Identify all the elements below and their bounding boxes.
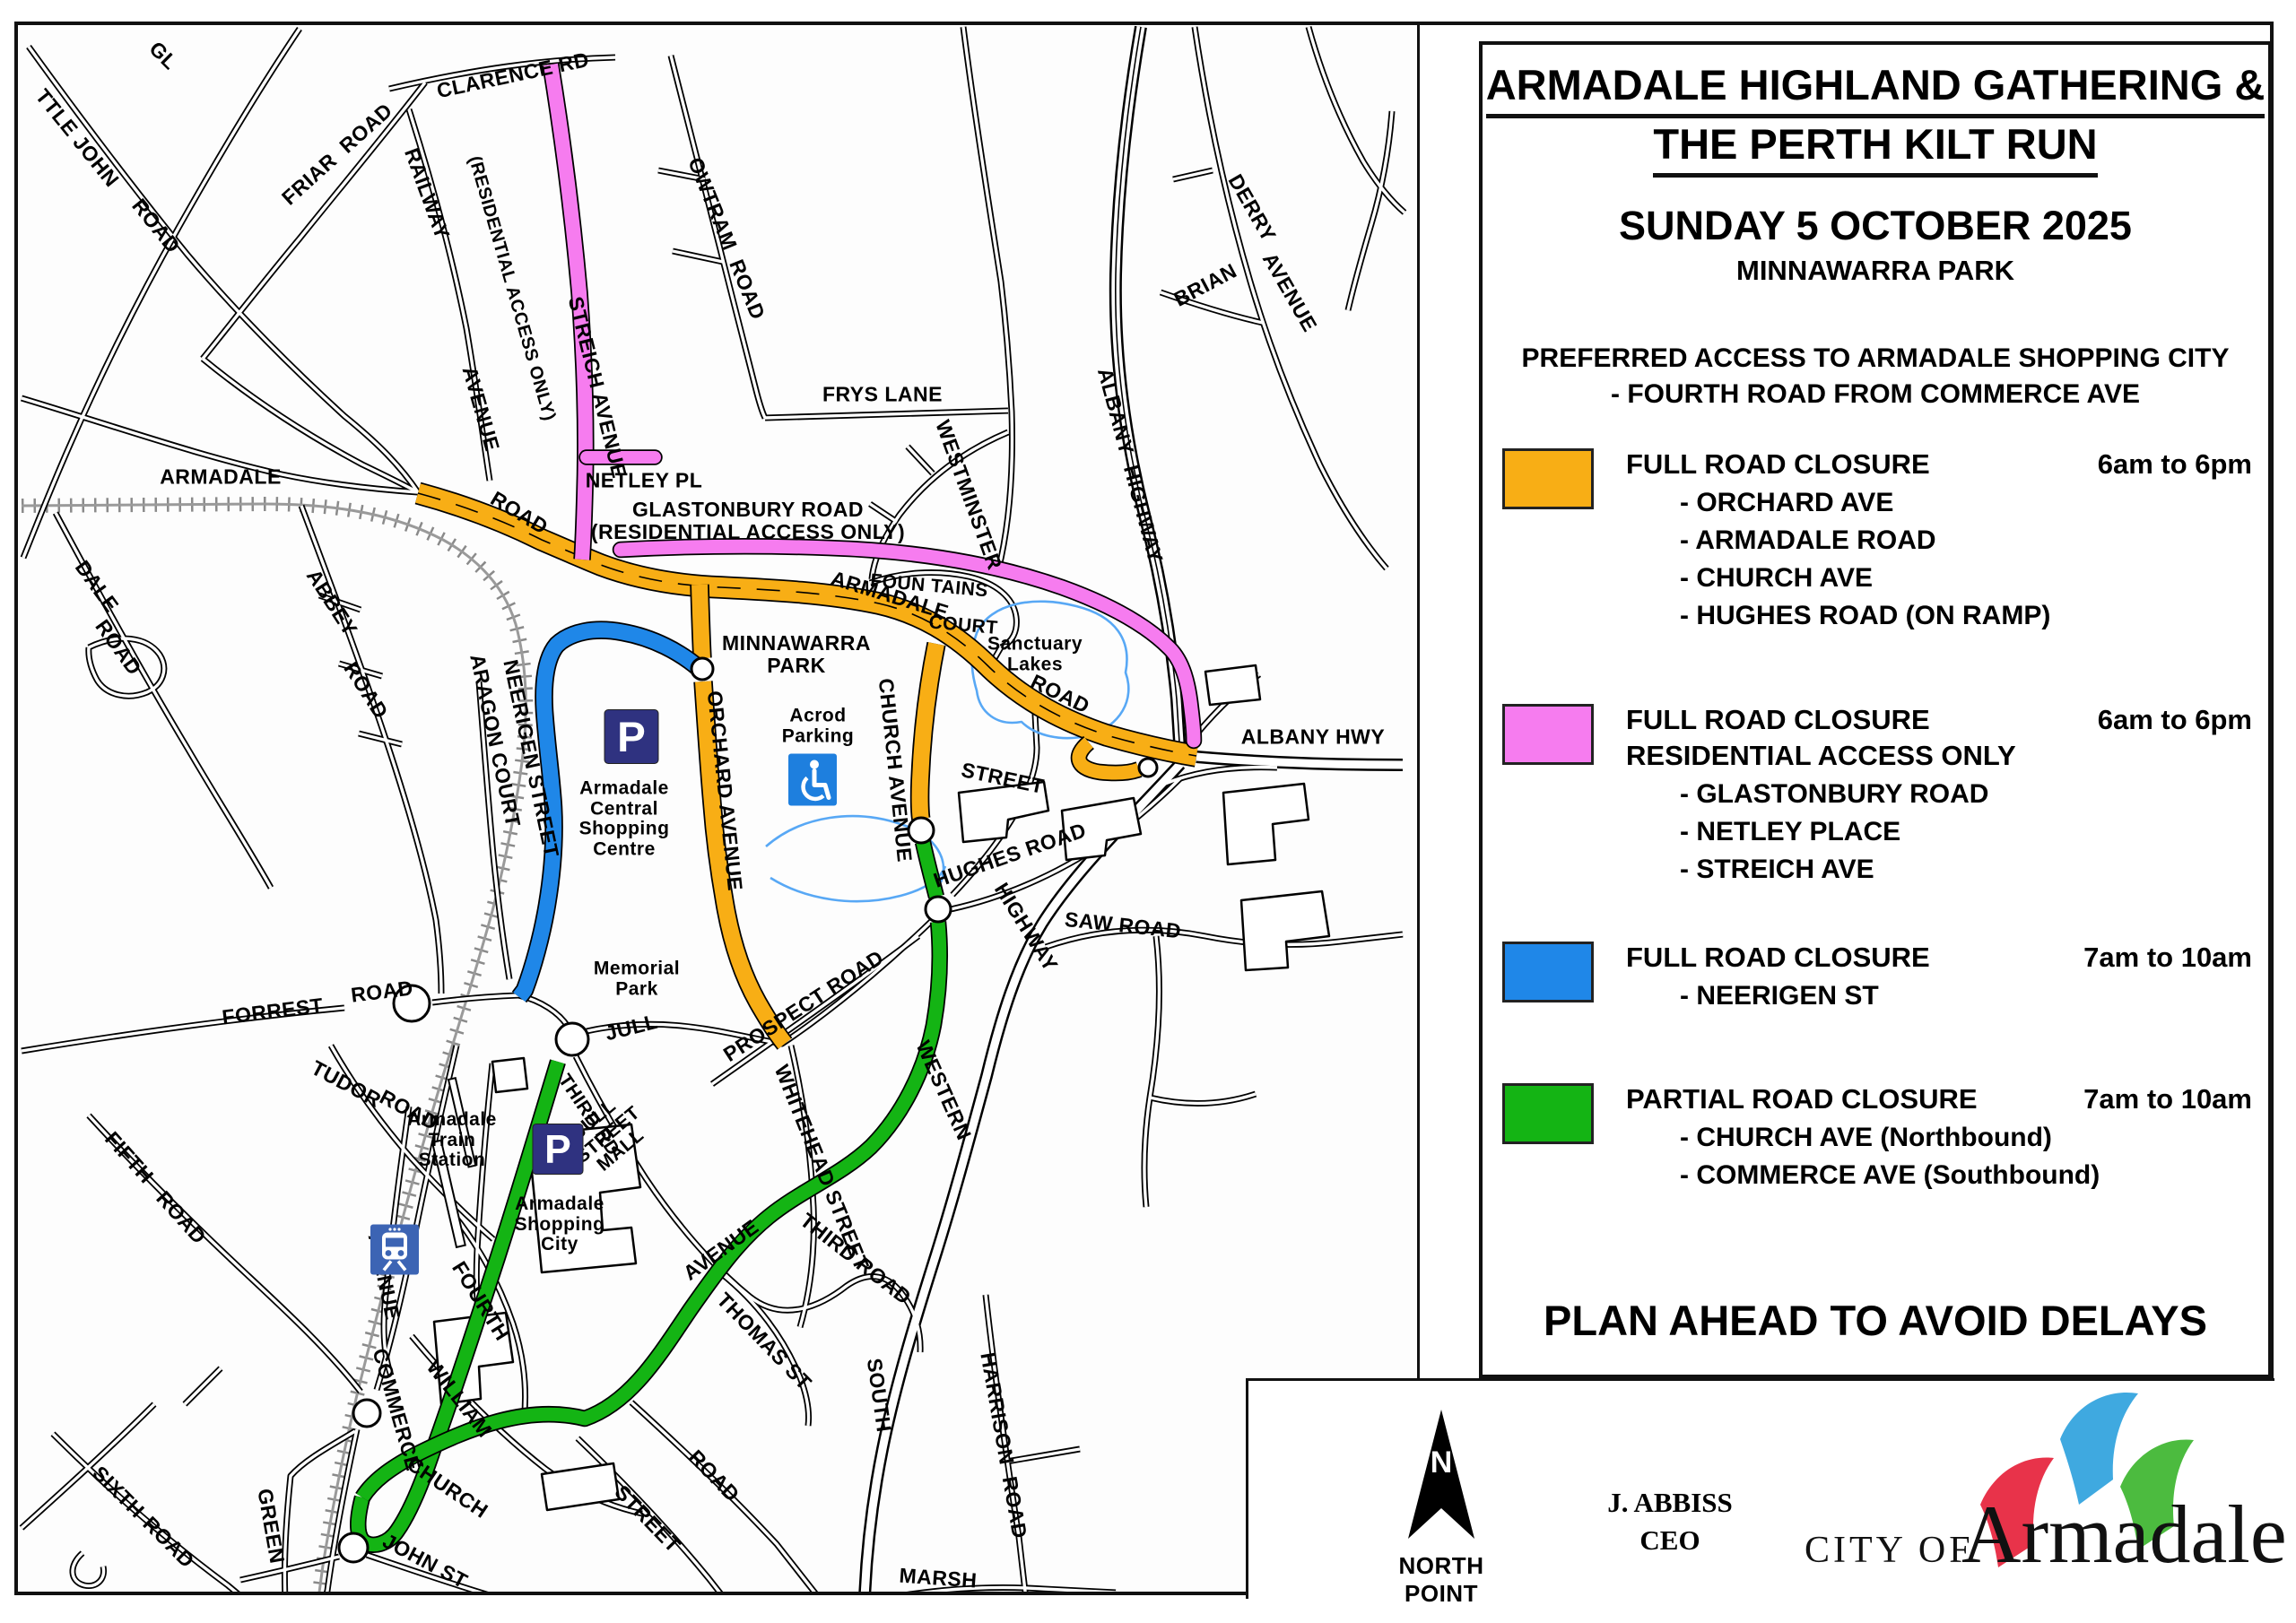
legend-bullet: - HUGHES ROAD (ON RAMP) xyxy=(1626,601,2252,631)
water-outline xyxy=(770,866,945,901)
map-label: Armadale Train Station xyxy=(407,1110,497,1171)
event-title-line2: THE PERTH KILT RUN xyxy=(1653,118,2097,178)
map-label: GLASTONBURY ROAD (RESIDENTIAL ACCESS ONL… xyxy=(591,499,905,543)
map-label: Acrod Parking xyxy=(782,706,855,746)
svg-text:P: P xyxy=(544,1128,571,1172)
north-arrow-icon: N xyxy=(1405,1408,1478,1542)
legend-bullet: - CHURCH AVE (Northbound) xyxy=(1626,1123,2252,1153)
map-label: Armadale Shopping City xyxy=(515,1194,605,1255)
legend-swatch xyxy=(1502,942,1594,1002)
preferred-access-note: PREFERRED ACCESS TO ARMADALE SHOPPING CI… xyxy=(1483,341,2268,413)
road-fill xyxy=(185,1368,221,1404)
north-point: N NORTH POINT xyxy=(1365,1408,1518,1608)
roundabout xyxy=(353,1400,380,1427)
legend-time: 6am to 6pm xyxy=(2098,704,2252,736)
map-label: FRYS LANE xyxy=(822,384,943,406)
map-label: MINNAWARRA PARK xyxy=(722,632,871,677)
legend-label: PARTIAL ROAD CLOSURE xyxy=(1626,1083,1978,1115)
roundabout xyxy=(556,1023,588,1055)
legend-row: FULL ROAD CLOSURE 7am to 10am - NEERIGEN… xyxy=(1502,942,2252,1011)
parking-icon: P xyxy=(604,709,659,769)
building-outline xyxy=(1223,784,1309,864)
acrod-parking-icon xyxy=(787,753,838,811)
event-title: ARMADALE HIGHLAND GATHERING & THE PERTH … xyxy=(1483,59,2268,178)
legend-time: 6am to 6pm xyxy=(2098,448,2252,481)
roundabout xyxy=(339,1533,368,1562)
svg-text:P: P xyxy=(617,714,646,761)
road-map: GLTTLE JOHNROADFRIAR ROADRAILWAYAVENUE(R… xyxy=(18,25,1420,1592)
train-station-icon xyxy=(370,1224,420,1280)
plan-ahead-note: PLAN AHEAD TO AVOID DELAYS xyxy=(1483,1296,2268,1345)
road-casing xyxy=(1144,936,1160,1207)
parking-icon: P xyxy=(532,1124,584,1180)
railway-ticks xyxy=(22,504,526,1592)
road-fill xyxy=(73,1553,104,1586)
map-label: NETLEY PL xyxy=(586,470,703,492)
road-fill xyxy=(673,251,723,262)
city-of-armadale-logo: CITY OF Armadale xyxy=(1805,1390,2271,1596)
legend-row: FULL ROAD CLOSURE 6am to 6pm RESIDENTIAL… xyxy=(1502,704,2252,885)
map-label: Sanctuary Lakes xyxy=(987,634,1083,674)
legend-swatch xyxy=(1502,1083,1594,1144)
road-casing xyxy=(53,1434,244,1592)
map-label: ALBANY HWY xyxy=(1241,726,1385,749)
map-label: ARMADALE xyxy=(160,466,282,489)
legend-bullet: - COMMERCE AVE (Southbound) xyxy=(1626,1160,2252,1191)
legend-bullet: - ORCHARD AVE xyxy=(1626,488,2252,518)
legend-label: FULL ROAD CLOSURE xyxy=(1626,448,1930,481)
railway-line xyxy=(22,504,526,1592)
legend-time: 7am to 10am xyxy=(2083,942,2252,974)
road-casing xyxy=(29,47,418,492)
legend-time: 7am to 10am xyxy=(2083,1083,2252,1115)
road-fill xyxy=(240,1557,339,1580)
event-title-line1: ARMADALE HIGHLAND GATHERING & xyxy=(1486,59,2266,118)
map-label: Memorial Park xyxy=(594,959,680,999)
legend-bullet: - CHURCH AVE xyxy=(1626,563,2252,594)
building-outline xyxy=(1205,665,1260,705)
map-label: Armadale Central Shopping Centre xyxy=(579,779,670,861)
event-date: SUNDAY 5 OCTOBER 2025 xyxy=(1483,203,2268,249)
info-panel: ARMADALE HIGHLAND GATHERING & THE PERTH … xyxy=(1479,41,2272,1378)
legend-swatch xyxy=(1502,448,1594,509)
map-label: MARSH xyxy=(899,1565,978,1592)
legend-swatch xyxy=(1502,704,1594,765)
legend-bullet: - NETLEY PLACE xyxy=(1626,817,2252,847)
building-outline xyxy=(1241,891,1329,970)
map-sheet: GLTTLE JOHNROADFRIAR ROADRAILWAYAVENUE(R… xyxy=(14,22,2274,1595)
closure-road xyxy=(700,585,702,658)
legend-row: FULL ROAD CLOSURE 6am to 6pm - ORCHARD A… xyxy=(1502,448,2252,631)
building-outline xyxy=(492,1058,527,1092)
city-of-label: CITY OF xyxy=(1805,1529,1974,1572)
legend-bullet: - NEERIGEN ST xyxy=(1626,981,2252,1011)
event-venue: MINNAWARRA PARK xyxy=(1483,255,2268,287)
road-fill xyxy=(359,733,402,744)
legend-bullet: - ARMADALE ROAD xyxy=(1626,525,2252,556)
roundabout xyxy=(691,658,713,680)
svg-text:N: N xyxy=(1431,1445,1453,1480)
north-point-label: NORTH POINT xyxy=(1365,1552,1518,1608)
legend-sub: RESIDENTIAL ACCESS ONLY xyxy=(1626,740,2252,772)
legend-bullet: - GLASTONBURY ROAD xyxy=(1626,779,2252,810)
armadale-wordmark: Armadale xyxy=(1961,1487,2287,1582)
legend-label: FULL ROAD CLOSURE xyxy=(1626,942,1930,974)
legend-label: FULL ROAD CLOSURE xyxy=(1626,704,1930,736)
legend-row: PARTIAL ROAD CLOSURE 7am to 10am - CHURC… xyxy=(1502,1083,2252,1191)
ceo-signature: J. ABBISSCEO xyxy=(1571,1484,1769,1559)
roundabout xyxy=(1139,759,1157,777)
legend-bullet: - STREICH AVE xyxy=(1626,855,2252,885)
footer-strip: N NORTH POINT J. ABBISSCEO CITY OF Armad… xyxy=(1246,1378,2274,1599)
roundabout xyxy=(926,897,951,922)
road-fill xyxy=(908,447,933,473)
